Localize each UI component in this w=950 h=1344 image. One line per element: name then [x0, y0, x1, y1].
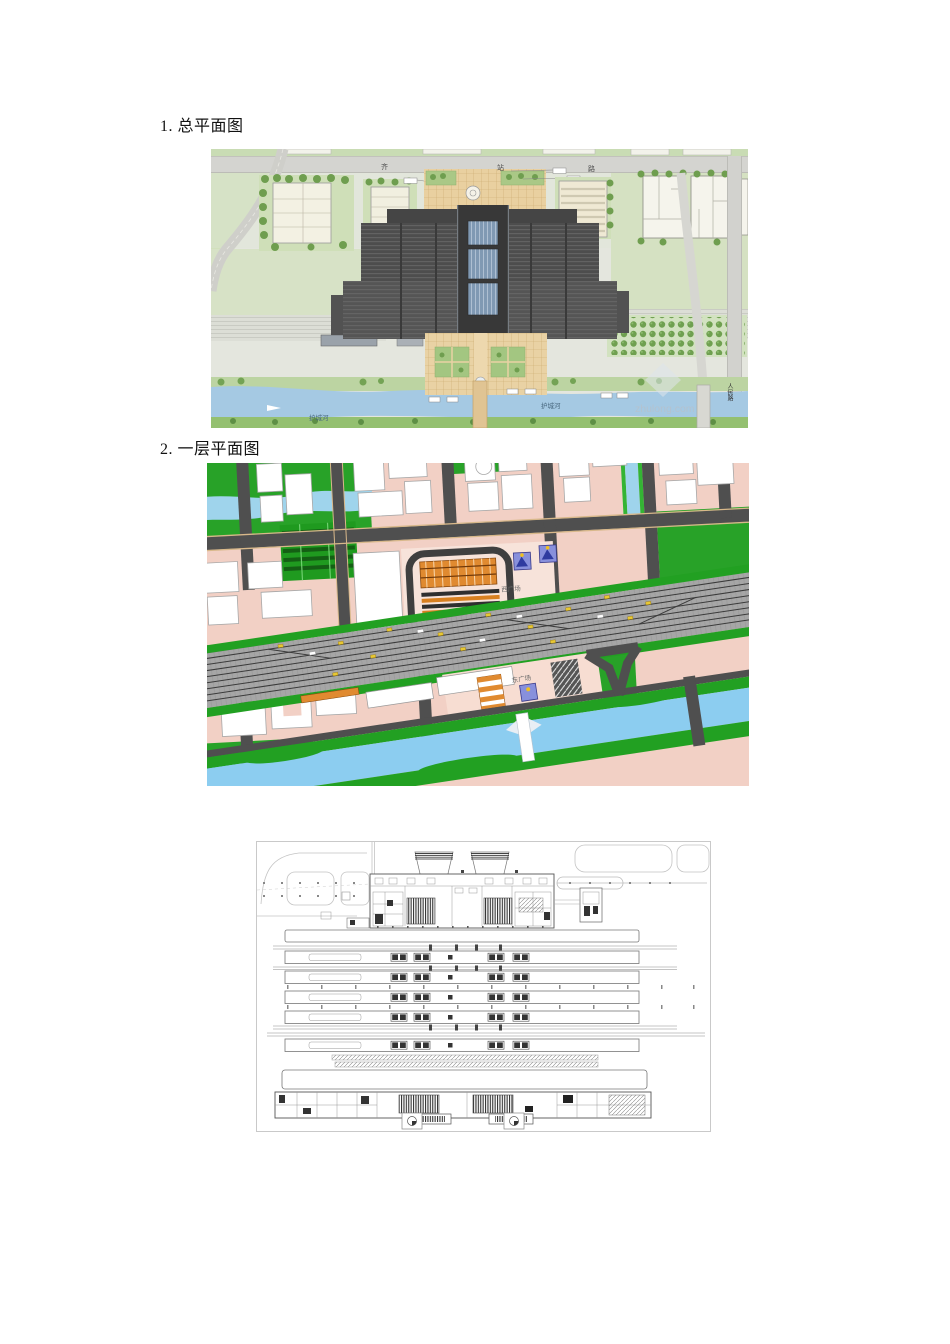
station-floorplan-figure: [256, 841, 711, 1132]
fig3-platform-wide-1: [285, 930, 639, 942]
fig3-north-building: [370, 874, 554, 928]
fig1-left-block: [259, 174, 354, 251]
fig1-right-road-label: 人民路: [726, 383, 733, 402]
fig1-station-building: [331, 205, 629, 346]
master-plan-figure: zhulong.com 齐 站 路 护城河 护城河 人民路: [211, 149, 748, 428]
first-floor-site-figure: 西广场: [207, 463, 749, 786]
first-floor-site-image: 西广场: [207, 463, 749, 786]
fig3-stair-pavilion-left: [402, 1113, 422, 1129]
master-plan-image: zhulong.com 齐 站 路 护城河 护城河 人民路: [211, 149, 748, 428]
fig3-hatch-strip-1: [332, 1055, 598, 1060]
heading-master-plan: 1. 总平面图: [160, 112, 244, 136]
fig1-river-label-left: 护城河: [309, 413, 329, 422]
fig3-platform-wide-2: [282, 1070, 647, 1089]
watermark-text: zhulong.com: [635, 403, 695, 415]
fig1-road-char-2: 站: [497, 163, 504, 172]
document-page: 1. 总平面图: [0, 0, 950, 1344]
fig1-road-char-3: 路: [588, 164, 595, 173]
fig3-hatch-strip-2: [335, 1062, 598, 1067]
heading-first-floor-plan: 2. 一层平面图: [160, 435, 260, 459]
fig3-stair-pavilion-right: [504, 1113, 524, 1129]
fig2-parking: [551, 659, 583, 698]
fig1-river-label-right: 护城河: [541, 401, 561, 410]
fig2-east-terminal: [477, 674, 505, 709]
station-floorplan-image: [257, 842, 710, 1131]
fig1-road-char-1: 齐: [381, 162, 388, 171]
